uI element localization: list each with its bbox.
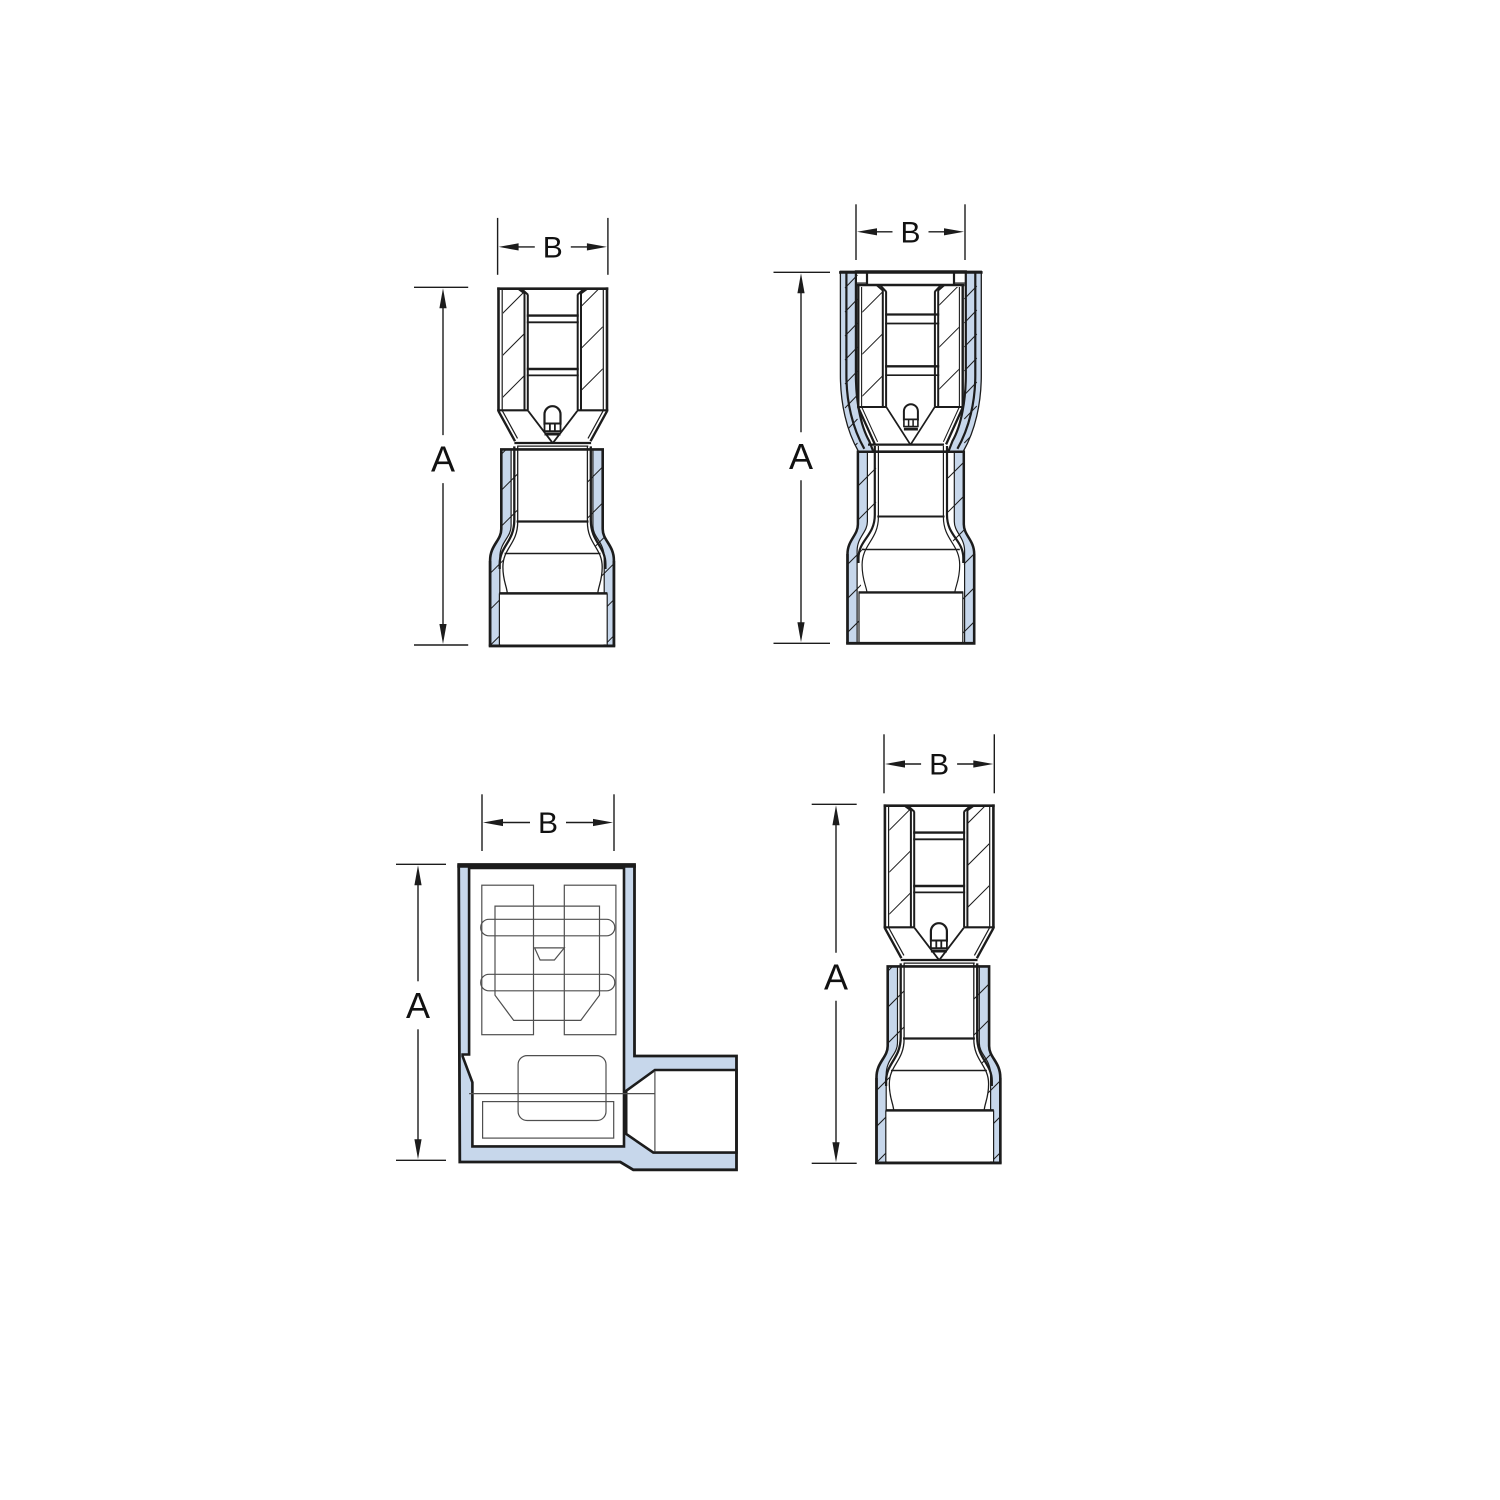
svg-text:B: B bbox=[543, 231, 563, 264]
svg-text:B: B bbox=[538, 807, 558, 840]
svg-text:A: A bbox=[824, 956, 848, 997]
svg-text:A: A bbox=[406, 985, 430, 1026]
svg-text:B: B bbox=[900, 216, 920, 249]
svg-text:A: A bbox=[431, 439, 455, 480]
svg-text:A: A bbox=[789, 436, 813, 477]
svg-text:B: B bbox=[929, 749, 949, 782]
